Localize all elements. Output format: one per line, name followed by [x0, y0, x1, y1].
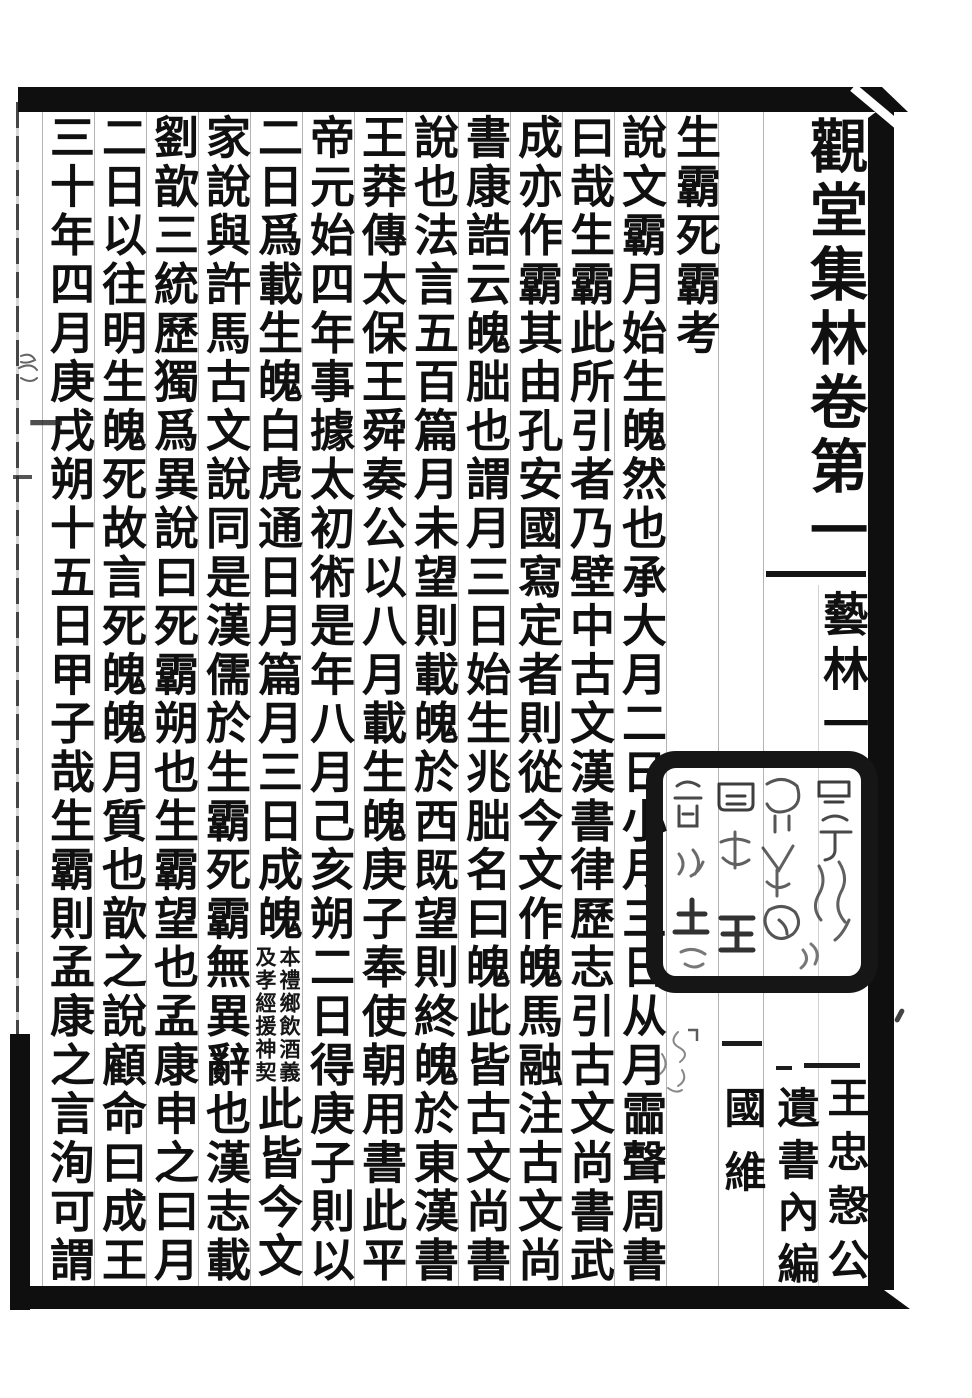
text-column: 家說與許馬古文說同是漢儒於生霸死霸無異辭也漢志載: [198, 114, 250, 1285]
seal-script-glyphs: [663, 768, 861, 976]
ink-dash: [804, 1063, 860, 1068]
ink-scribble: [648, 1026, 700, 1102]
text-column: 三十年四月庚戌朔十五日甲子哉生霸則孟康之言洵可謂: [42, 114, 94, 1285]
text-column: 二日以往明生魄死故言死魄魄月質也歆之說顧命曰成王: [94, 114, 146, 1285]
text-column: 曰哉生霸此所引者乃壁中古文漢書律歷志引古文尚書武: [562, 114, 614, 1285]
library-collection-seal: [646, 751, 878, 993]
series-note-right: 王忠愨公: [822, 1076, 868, 1292]
interlinear-note: 本禮鄉飲酒義及孝經援神契: [252, 944, 300, 1086]
note-right-subcolumn: 本禮鄉飲酒義: [277, 946, 300, 1084]
text-run: 此皆今文: [250, 1086, 303, 1281]
text-column: 王莽傳太保王舜奏公以八月載生魄庚子奉使朝用書此平: [354, 114, 406, 1285]
title-divider-line: [766, 571, 866, 577]
volume-title: 觀堂集林卷第一: [802, 116, 866, 564]
edge-fragment-stroke: [13, 475, 32, 479]
ink-dash: [776, 1066, 792, 1070]
ink-speck: [894, 1008, 905, 1024]
note-left-subcolumn: 及孝經援神契: [253, 946, 276, 1084]
text-column-with-note: 二日爲載生魄白虎通日月篇月三日成魄本禮鄉飲酒義及孝經援神契此皆今文: [250, 114, 302, 1281]
frame-left-border-thick: [10, 1034, 30, 1310]
author-name: 國維: [720, 1086, 764, 1214]
frame-bottom-border: [10, 1286, 910, 1309]
frame-top-border: [18, 87, 908, 112]
section-label: 藝林一: [820, 590, 866, 755]
book-page: 觀堂集林卷第一 藝林一 王忠愨公 遺書內編 國維 生霸死霸考 說文霸月始生魄然也…: [0, 0, 972, 1398]
text-column: 帝元始四年事據太初術是年八月己亥朔二日得庚子則以: [302, 114, 354, 1285]
frame-right-border: [868, 98, 894, 1290]
text-column: 說也法言五百篇月未望則載魄於西既望則終魄於東漢書: [406, 114, 458, 1285]
text-column: 書康誥云魄朏也謂月三日始生兆朏名曰魄此皆古文尚書: [458, 114, 510, 1285]
text-column: 劉歆三統歷獨爲異說曰死霸朔也生霸望也孟康申之曰月: [146, 114, 198, 1285]
text-column: 說文霸月始生魄然也承大月二日小月三日从月霝聲周書: [614, 114, 666, 1285]
essay-title: 生霸死霸考: [668, 114, 720, 358]
fold-text-fragment: 記一: [28, 400, 62, 456]
series-note-left: 遺書內編: [772, 1086, 818, 1294]
edge-fragment-blob: [15, 352, 39, 386]
ink-dash: [722, 1041, 762, 1046]
text-column: 成亦作霸其由孔安國寫定者則從今文作魄馬融注古文尚: [510, 114, 562, 1285]
edge-fragment-text: 記一: [28, 400, 62, 456]
text-run: 二日爲載生魄白虎通日月篇月三日成魄: [250, 114, 303, 944]
